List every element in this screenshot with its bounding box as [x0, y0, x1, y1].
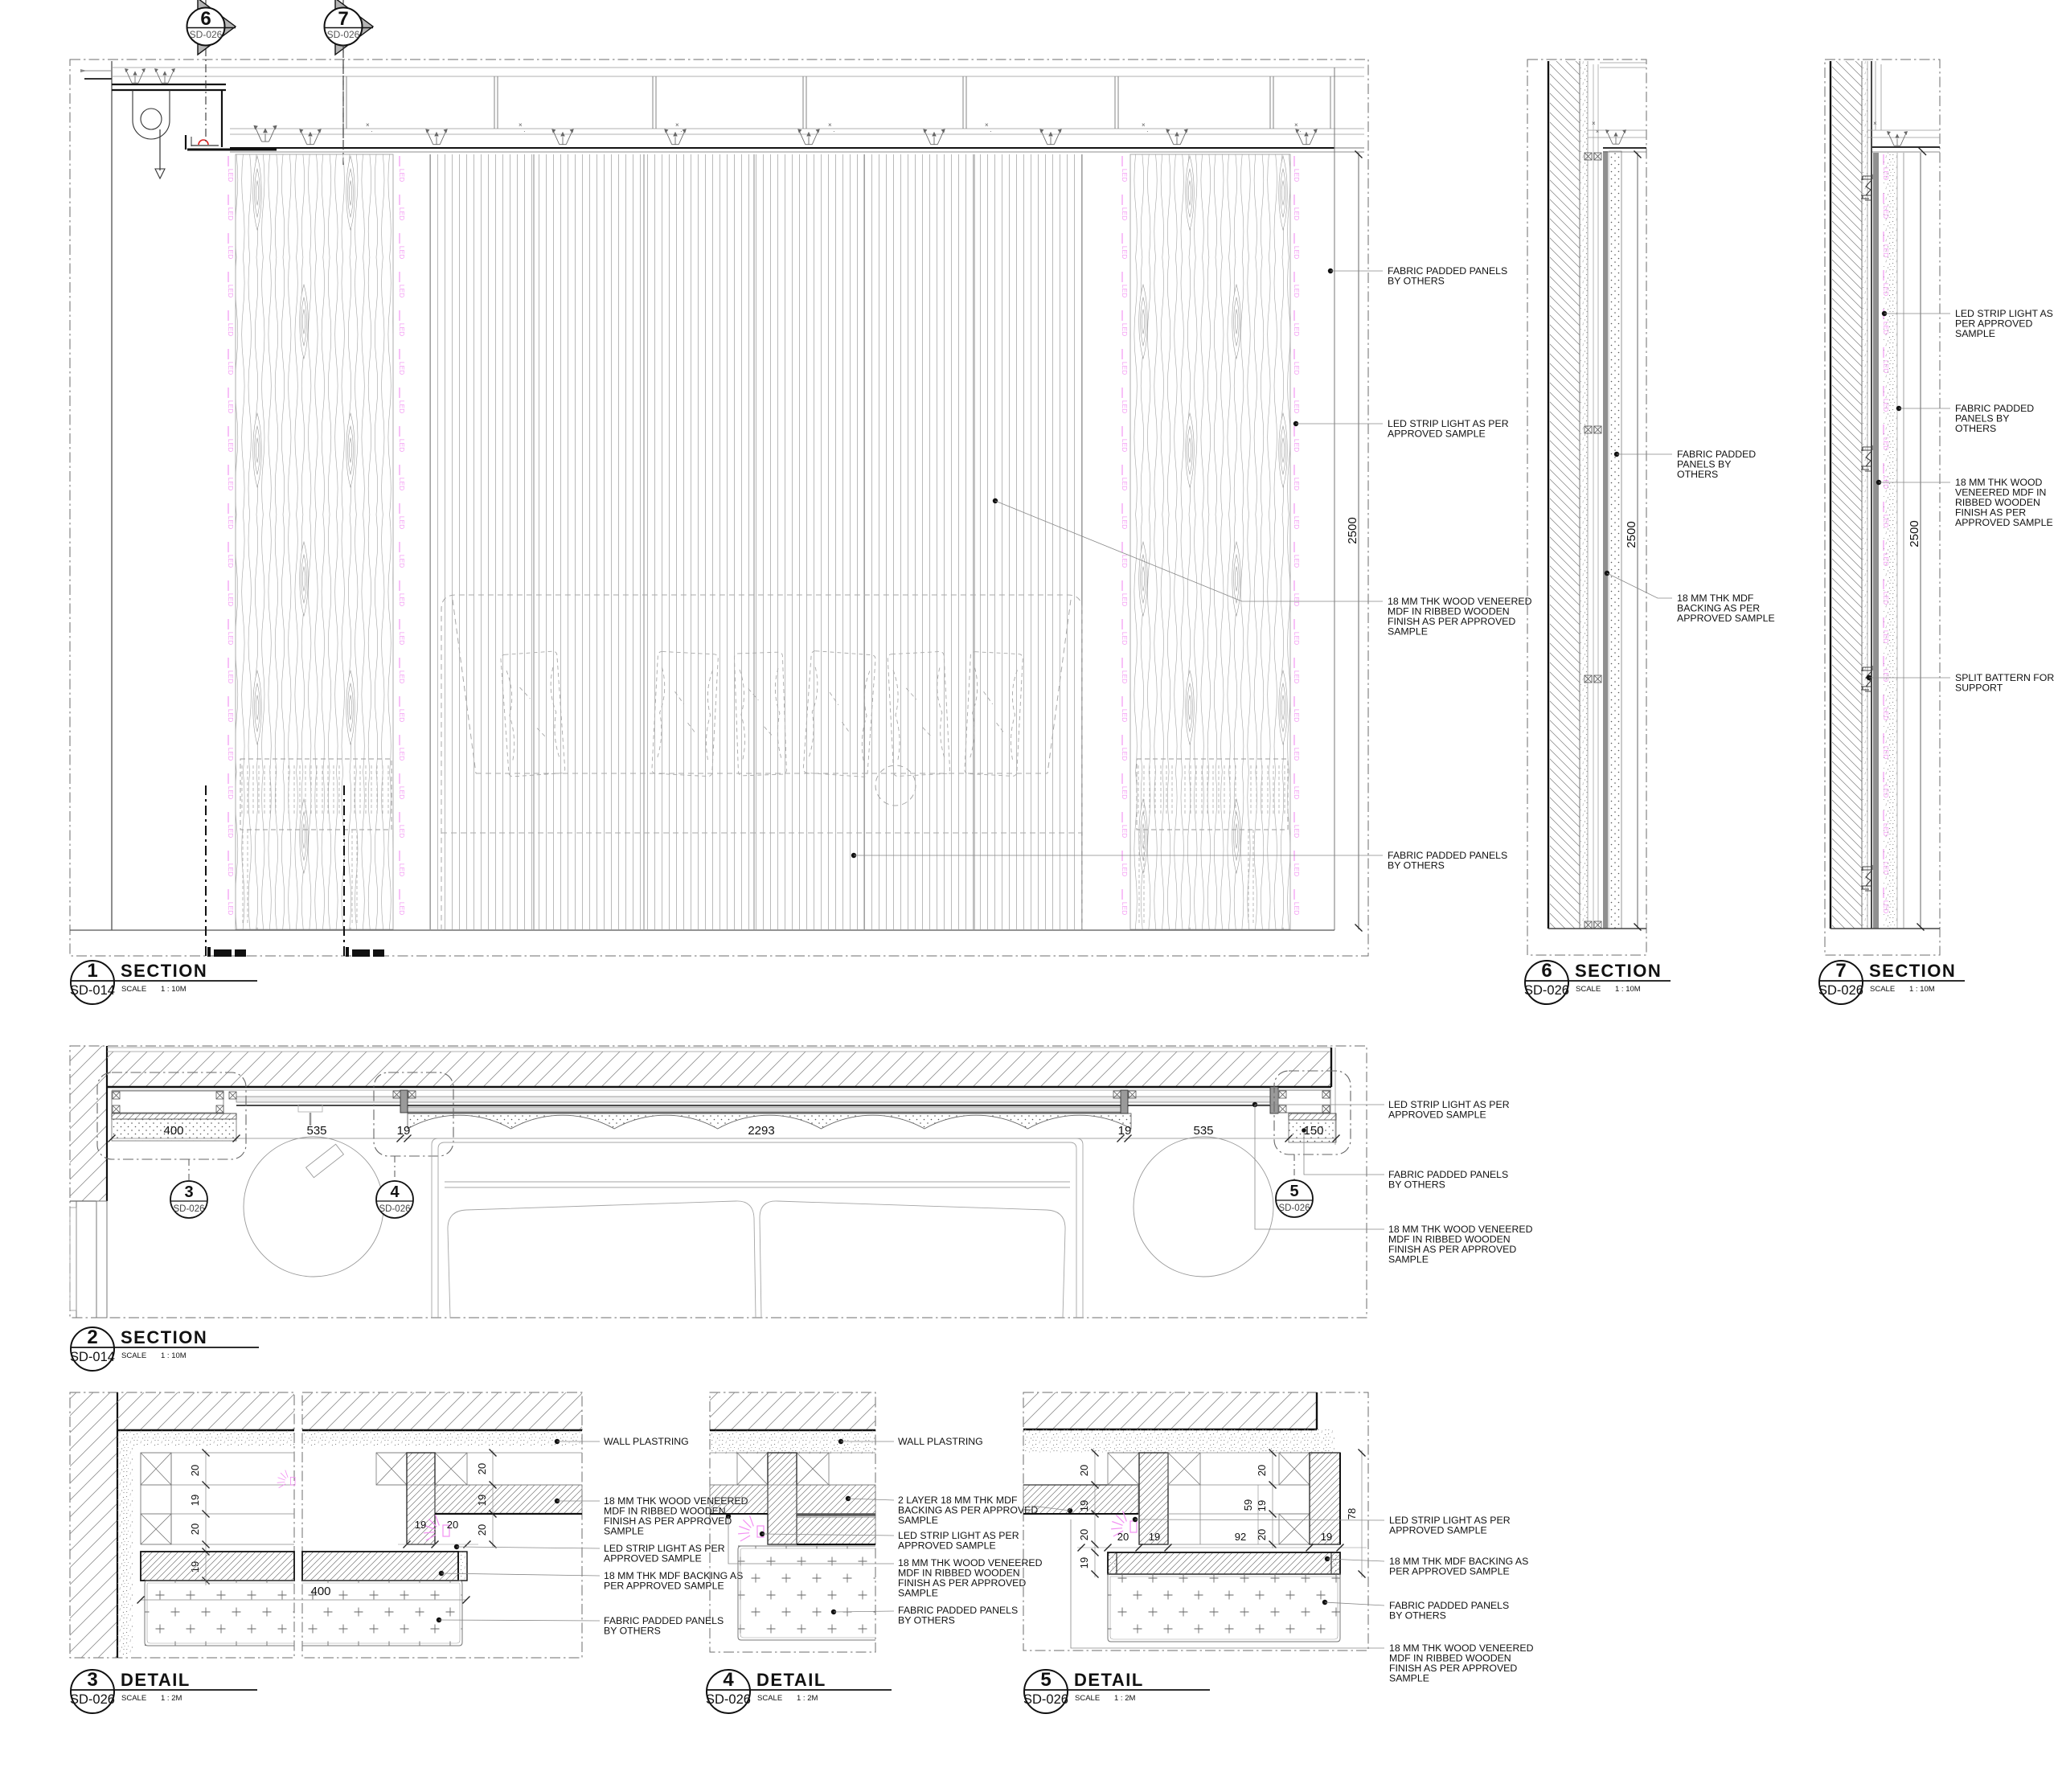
svg-text:78: 78 [1346, 1508, 1358, 1519]
svg-text:LED: LED [227, 439, 235, 453]
svg-text:LED: LED [1293, 400, 1301, 414]
svg-text:LED: LED [1293, 825, 1301, 839]
svg-text:SECTION: SECTION [1575, 961, 1662, 981]
svg-text:LED: LED [1293, 863, 1301, 877]
svg-text:LED: LED [227, 478, 235, 491]
svg-text:1 : 10M: 1 : 10M [1615, 985, 1641, 994]
svg-text:SECTION: SECTION [121, 1327, 207, 1347]
svg-text:20: 20 [1117, 1531, 1129, 1543]
svg-text:LED: LED [398, 902, 406, 916]
svg-text:LED: LED [1293, 323, 1301, 337]
svg-text:SAMPLE: SAMPLE [604, 1526, 644, 1537]
svg-text:×: × [1873, 120, 1877, 127]
svg-text:APPROVED SAMPLE: APPROVED SAMPLE [1388, 429, 1486, 440]
svg-text:PER APPROVED SAMPLE: PER APPROVED SAMPLE [604, 1581, 724, 1592]
svg-text:OTHERS: OTHERS [1677, 469, 1718, 480]
svg-text:·: · [833, 128, 835, 135]
svg-text:LED: LED [227, 323, 235, 337]
svg-text:19: 19 [1256, 1500, 1268, 1511]
svg-text:LED: LED [227, 246, 235, 260]
svg-text:LED: LED [227, 786, 235, 800]
svg-text:LED: LED [227, 555, 235, 568]
svg-text:535: 535 [306, 1124, 326, 1138]
svg-text:LED: LED [1121, 285, 1129, 298]
svg-text:LED: LED [1293, 748, 1301, 761]
svg-text:·: · [680, 128, 683, 135]
svg-text:20: 20 [189, 1523, 201, 1535]
svg-text:·: · [523, 128, 526, 135]
svg-text:LED: LED [1121, 400, 1129, 414]
svg-text:LED: LED [398, 516, 406, 530]
svg-text:LED: LED [227, 516, 235, 530]
svg-text:LED: LED [1293, 285, 1301, 298]
svg-text:LED: LED [1293, 246, 1301, 260]
svg-text:SCALE: SCALE [1870, 985, 1895, 994]
svg-text:LED: LED [227, 863, 235, 877]
svg-text:BY OTHERS: BY OTHERS [898, 1615, 955, 1626]
svg-text:19: 19 [1118, 1124, 1132, 1138]
svg-text:LED: LED [1121, 555, 1129, 568]
svg-text:·: · [990, 128, 992, 135]
svg-text:LED: LED [227, 670, 235, 684]
svg-text:LED: LED [398, 670, 406, 684]
svg-text:19: 19 [1149, 1531, 1160, 1543]
svg-text:SD-026: SD-026 [190, 29, 223, 40]
svg-text:SUPPORT: SUPPORT [1955, 683, 2003, 694]
svg-text:LED: LED [398, 207, 406, 221]
svg-text:LED: LED [1121, 670, 1129, 684]
svg-text:APPROVED SAMPLE: APPROVED SAMPLE [1389, 1525, 1487, 1536]
svg-text:LED: LED [1121, 362, 1129, 375]
svg-text:20: 20 [1078, 1465, 1090, 1476]
svg-text:BY OTHERS: BY OTHERS [1388, 1179, 1445, 1191]
svg-text:5: 5 [1040, 1669, 1051, 1691]
svg-text:APPROVED SAMPLE: APPROVED SAMPLE [604, 1553, 702, 1564]
svg-text:APPROVED SAMPLE: APPROVED SAMPLE [1955, 517, 2053, 528]
svg-text:×: × [1592, 120, 1596, 127]
svg-text:SD-026: SD-026 [379, 1204, 411, 1214]
svg-text:LED: LED [1121, 825, 1129, 839]
svg-text:2500: 2500 [1346, 517, 1359, 543]
svg-text:SD-026: SD-026 [706, 1692, 751, 1707]
svg-text:LED: LED [398, 400, 406, 414]
svg-text:LED: LED [398, 478, 406, 491]
svg-text:19: 19 [397, 1124, 411, 1138]
svg-text:OTHERS: OTHERS [1955, 423, 1996, 434]
svg-text:LED: LED [1121, 478, 1129, 491]
svg-text:LED: LED [1121, 323, 1129, 337]
svg-text:19: 19 [1321, 1531, 1332, 1543]
svg-text:×: × [519, 121, 523, 129]
svg-text:LED: LED [1121, 786, 1129, 800]
svg-text:LED: LED [1293, 632, 1301, 646]
svg-text:APPROVED SAMPLE: APPROVED SAMPLE [898, 1540, 996, 1552]
svg-text:SD-026: SD-026 [1818, 983, 1863, 998]
svg-text:LED: LED [1293, 670, 1301, 684]
svg-text:535: 535 [1193, 1124, 1213, 1138]
svg-text:SAMPLE: SAMPLE [1388, 626, 1428, 638]
svg-text:LED: LED [398, 748, 406, 761]
svg-text:SAMPLE: SAMPLE [1389, 1673, 1429, 1684]
svg-text:SD-026: SD-026 [174, 1204, 205, 1214]
svg-text:19: 19 [1078, 1500, 1090, 1511]
svg-text:SCALE: SCALE [121, 1694, 146, 1703]
svg-text:WALL PLASTRING: WALL PLASTRING [604, 1436, 689, 1447]
svg-text:400: 400 [310, 1585, 330, 1598]
svg-text:LED: LED [1121, 207, 1129, 221]
svg-text:LED: LED [1293, 439, 1301, 453]
svg-text:LED: LED [1121, 902, 1129, 916]
svg-text:LED: LED [1293, 555, 1301, 568]
svg-text:6: 6 [1541, 960, 1552, 982]
svg-text:LED: LED [1293, 902, 1301, 916]
svg-text:2500: 2500 [1908, 520, 1921, 547]
svg-text:SAMPLE: SAMPLE [898, 1588, 938, 1599]
svg-text:92: 92 [1235, 1531, 1246, 1543]
svg-text:LED: LED [1121, 169, 1129, 182]
svg-text:6: 6 [200, 8, 211, 30]
svg-text:SCALE: SCALE [757, 1694, 782, 1703]
svg-text:20: 20 [1256, 1465, 1268, 1476]
svg-text:LED: LED [227, 709, 235, 723]
svg-text:LED: LED [1293, 207, 1301, 221]
svg-text:LED: LED [1121, 632, 1129, 646]
svg-text:LED: LED [1293, 593, 1301, 607]
svg-text:LED: LED [227, 825, 235, 839]
svg-text:LED: LED [398, 323, 406, 337]
svg-text:LED: LED [398, 169, 406, 182]
svg-text:2: 2 [87, 1327, 97, 1348]
svg-text:5: 5 [1289, 1183, 1298, 1200]
svg-text:LED: LED [398, 825, 406, 839]
svg-text:SD-026: SD-026 [1023, 1692, 1068, 1707]
svg-text:LED: LED [227, 902, 235, 916]
svg-text:LED: LED [1121, 593, 1129, 607]
svg-text:LED: LED [227, 748, 235, 761]
svg-text:1 : 10M: 1 : 10M [161, 1351, 187, 1360]
svg-text:·: · [1146, 128, 1149, 135]
svg-text:LED: LED [227, 362, 235, 375]
svg-text:1 : 10M: 1 : 10M [161, 985, 187, 994]
svg-text:LED: LED [398, 285, 406, 298]
svg-text:BY OTHERS: BY OTHERS [1388, 860, 1445, 871]
svg-text:×: × [675, 121, 679, 129]
svg-text:LED: LED [227, 285, 235, 298]
svg-text:4: 4 [723, 1669, 734, 1691]
svg-text:LED: LED [227, 169, 235, 182]
svg-text:LED: LED [1293, 169, 1301, 182]
svg-text:20: 20 [189, 1465, 201, 1476]
svg-text:LED: LED [1293, 362, 1301, 375]
svg-text:1 : 10M: 1 : 10M [1909, 985, 1935, 994]
svg-text:1 : 2M: 1 : 2M [1114, 1694, 1135, 1703]
svg-text:20: 20 [447, 1519, 458, 1531]
svg-text:SCALE: SCALE [121, 985, 146, 994]
svg-text:4: 4 [390, 1183, 400, 1201]
svg-text:SD-026: SD-026 [327, 29, 360, 40]
svg-text:SCALE: SCALE [121, 1351, 146, 1360]
svg-text:SD-014: SD-014 [70, 1350, 115, 1364]
svg-text:×: × [366, 121, 370, 129]
svg-text:LED: LED [1121, 439, 1129, 453]
svg-text:2500: 2500 [1625, 521, 1638, 547]
svg-text:APPROVED SAMPLE: APPROVED SAMPLE [1677, 613, 1775, 624]
svg-text:20: 20 [476, 1463, 488, 1474]
svg-text:SCALE: SCALE [1075, 1694, 1100, 1703]
svg-text:20: 20 [1078, 1529, 1090, 1540]
svg-text:1 : 2M: 1 : 2M [161, 1694, 182, 1703]
svg-text:SECTION: SECTION [121, 961, 207, 981]
svg-text:LED: LED [398, 786, 406, 800]
svg-text:·: · [371, 128, 373, 135]
svg-text:SCALE: SCALE [1576, 985, 1601, 994]
svg-text:SD-014: SD-014 [70, 983, 115, 998]
svg-text:7: 7 [1835, 960, 1846, 982]
svg-text:DETAIL: DETAIL [756, 1670, 826, 1690]
svg-text:SAMPLE: SAMPLE [898, 1515, 938, 1526]
svg-text:DETAIL: DETAIL [121, 1670, 191, 1690]
svg-text:LED: LED [1121, 516, 1129, 530]
svg-text:LED: LED [1121, 246, 1129, 260]
svg-text:×: × [985, 121, 989, 129]
svg-text:×: × [828, 121, 832, 129]
svg-text:LED: LED [398, 632, 406, 646]
svg-text:APPROVED SAMPLE: APPROVED SAMPLE [1388, 1109, 1486, 1121]
svg-text:LED: LED [398, 555, 406, 568]
svg-text:3: 3 [87, 1669, 97, 1691]
svg-text:20: 20 [1256, 1529, 1268, 1540]
svg-text:LED: LED [227, 207, 235, 221]
svg-text:400: 400 [163, 1124, 183, 1138]
svg-text:LED: LED [398, 439, 406, 453]
svg-text:19: 19 [1078, 1557, 1090, 1569]
svg-text:LED: LED [398, 863, 406, 877]
svg-text:SAMPLE: SAMPLE [1388, 1254, 1429, 1265]
svg-text:×: × [1142, 121, 1146, 129]
svg-text:BY OTHERS: BY OTHERS [604, 1626, 661, 1637]
svg-text:LED: LED [227, 593, 235, 607]
svg-text:7: 7 [338, 8, 348, 30]
svg-text:2293: 2293 [748, 1124, 774, 1138]
svg-text:SECTION: SECTION [1869, 961, 1956, 981]
svg-text:19: 19 [415, 1519, 426, 1531]
svg-text:19: 19 [189, 1495, 201, 1506]
svg-text:1 : 2M: 1 : 2M [797, 1694, 818, 1703]
svg-text:LED: LED [1293, 516, 1301, 530]
svg-text:BY OTHERS: BY OTHERS [1388, 276, 1445, 287]
svg-text:LED: LED [1293, 478, 1301, 491]
svg-text:PER APPROVED SAMPLE: PER APPROVED SAMPLE [1389, 1566, 1510, 1577]
svg-text:LED: LED [1121, 709, 1129, 723]
svg-text:SD-026: SD-026 [1524, 983, 1569, 998]
svg-text:×: × [1596, 129, 1599, 135]
svg-text:LED: LED [227, 400, 235, 414]
svg-text:LED: LED [1293, 709, 1301, 723]
svg-text:19: 19 [476, 1495, 488, 1506]
svg-text:·: · [1299, 128, 1302, 135]
svg-text:LED: LED [227, 632, 235, 646]
svg-text:150: 150 [1303, 1124, 1323, 1138]
svg-text:20: 20 [476, 1524, 488, 1536]
svg-text:1: 1 [87, 960, 97, 982]
svg-text:SAMPLE: SAMPLE [1955, 328, 1995, 339]
svg-text:SD-026: SD-026 [1279, 1204, 1310, 1213]
svg-text:3: 3 [184, 1183, 193, 1201]
svg-text:LED: LED [1293, 786, 1301, 800]
svg-text:DETAIL: DETAIL [1074, 1670, 1144, 1690]
svg-text:LED: LED [398, 709, 406, 723]
svg-text:SD-026: SD-026 [70, 1692, 115, 1707]
svg-text:×: × [1294, 121, 1298, 129]
svg-text:59: 59 [1242, 1499, 1254, 1511]
svg-text:LED: LED [1121, 863, 1129, 877]
svg-text:BY OTHERS: BY OTHERS [1389, 1610, 1446, 1622]
svg-text:WALL PLASTRING: WALL PLASTRING [898, 1436, 983, 1447]
svg-text:LED: LED [398, 593, 406, 607]
svg-text:LED: LED [398, 362, 406, 375]
svg-text:LED: LED [398, 246, 406, 260]
svg-text:LED: LED [1121, 748, 1129, 761]
